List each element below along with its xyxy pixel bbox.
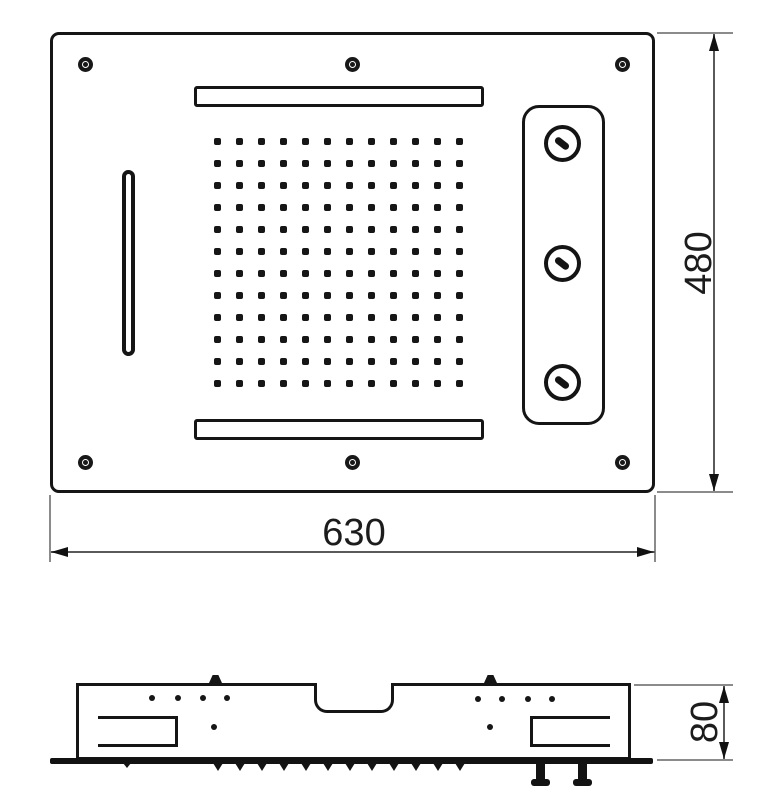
nozzle-dot bbox=[214, 160, 221, 167]
nozzle-dot bbox=[302, 138, 309, 145]
nozzle-dot bbox=[214, 314, 221, 321]
nozzle-dot bbox=[368, 138, 375, 145]
nozzle-dot bbox=[434, 358, 441, 365]
nozzle-dot bbox=[456, 160, 463, 167]
nozzle-dot bbox=[434, 270, 441, 277]
nozzle-dot bbox=[236, 226, 243, 233]
nozzle-dot bbox=[456, 204, 463, 211]
nozzle-dot bbox=[280, 138, 287, 145]
nozzle-dot bbox=[412, 138, 419, 145]
nozzle-dot bbox=[412, 314, 419, 321]
nozzle-dot bbox=[214, 248, 221, 255]
nozzle-dot bbox=[236, 292, 243, 299]
nozzle-dot bbox=[214, 380, 221, 387]
nozzle-dot bbox=[368, 204, 375, 211]
screw-center-dot bbox=[83, 62, 88, 67]
screw-center-dot bbox=[620, 460, 625, 465]
nozzle-dot bbox=[346, 160, 353, 167]
nozzle-dot bbox=[346, 292, 353, 299]
nozzle-dot bbox=[280, 160, 287, 167]
nozzle-tooth bbox=[345, 763, 355, 771]
nozzle-tooth bbox=[235, 763, 245, 771]
nozzle-dot bbox=[368, 270, 375, 277]
nozzle-dot bbox=[390, 358, 397, 365]
nozzle-dot bbox=[302, 182, 309, 189]
side-dot bbox=[487, 724, 493, 730]
nozzle-dot bbox=[324, 336, 331, 343]
nozzle-dot bbox=[214, 182, 221, 189]
nozzle-dot bbox=[302, 292, 309, 299]
nozzle-dot bbox=[346, 270, 353, 277]
nozzle-tooth bbox=[455, 763, 465, 771]
nozzle-dot bbox=[412, 270, 419, 277]
nozzle-dot bbox=[214, 270, 221, 277]
nozzle-dot bbox=[302, 336, 309, 343]
nozzle-tooth bbox=[301, 763, 311, 771]
nozzle-dot bbox=[412, 358, 419, 365]
nozzle-dot bbox=[434, 182, 441, 189]
nozzle-dot bbox=[236, 160, 243, 167]
nozzle-dot bbox=[302, 226, 309, 233]
nozzle-dot bbox=[456, 226, 463, 233]
nozzle-dot bbox=[280, 358, 287, 365]
nozzle-dot bbox=[214, 336, 221, 343]
nozzle-dot bbox=[434, 380, 441, 387]
height-arrow-up-icon bbox=[709, 34, 719, 51]
nozzle-dot bbox=[434, 160, 441, 167]
nozzle-dot bbox=[280, 226, 287, 233]
nozzle-dot bbox=[346, 226, 353, 233]
nozzle-dot bbox=[324, 358, 331, 365]
nozzle-dot bbox=[324, 182, 331, 189]
side-dot bbox=[499, 696, 505, 702]
nozzle-dot bbox=[368, 380, 375, 387]
nozzle-dot bbox=[434, 204, 441, 211]
nozzle-dot bbox=[412, 204, 419, 211]
nozzle-dot bbox=[280, 270, 287, 277]
jet-outlet bbox=[544, 364, 581, 401]
nozzle-dot bbox=[236, 336, 243, 343]
nozzle-dot bbox=[214, 204, 221, 211]
nozzle-dot bbox=[390, 336, 397, 343]
nozzle-dot bbox=[258, 358, 265, 365]
nozzle-dot bbox=[258, 270, 265, 277]
nozzle-dot bbox=[390, 380, 397, 387]
nozzle-dot bbox=[368, 182, 375, 189]
drawing-canvas: 480 630 80 bbox=[0, 0, 766, 800]
nozzle-dot bbox=[456, 292, 463, 299]
nozzle-dot bbox=[236, 248, 243, 255]
nozzle-dot bbox=[236, 204, 243, 211]
width-dim-label: 630 bbox=[302, 513, 406, 553]
nozzle-dot bbox=[368, 336, 375, 343]
nozzle-dot bbox=[412, 226, 419, 233]
nozzle-dot bbox=[434, 292, 441, 299]
jet-slot-icon bbox=[554, 374, 571, 389]
nozzle-dot bbox=[368, 248, 375, 255]
jet-outlet bbox=[544, 125, 581, 162]
nozzle-dot bbox=[412, 248, 419, 255]
nozzle-dot bbox=[324, 138, 331, 145]
nozzle-tooth bbox=[389, 763, 399, 771]
bolt-stem bbox=[578, 763, 587, 780]
nozzle-dot bbox=[412, 292, 419, 299]
nozzle-dot bbox=[302, 380, 309, 387]
nozzle-dot bbox=[236, 358, 243, 365]
nozzle-dot bbox=[412, 160, 419, 167]
nozzle-dot bbox=[390, 248, 397, 255]
nozzle-dot bbox=[434, 314, 441, 321]
nozzle-dot bbox=[236, 314, 243, 321]
nozzle-dot bbox=[258, 314, 265, 321]
spray-slot-top bbox=[194, 86, 484, 107]
nozzle-dot bbox=[280, 336, 287, 343]
nozzle-dot bbox=[390, 270, 397, 277]
screw-center-dot bbox=[83, 460, 88, 465]
nozzle-dot bbox=[346, 248, 353, 255]
screw-hole bbox=[615, 455, 630, 470]
nozzle-dot bbox=[434, 336, 441, 343]
nozzle-dot bbox=[302, 358, 309, 365]
nozzle-dot bbox=[434, 226, 441, 233]
nozzle-dot bbox=[280, 248, 287, 255]
nozzle-dot bbox=[258, 292, 265, 299]
waterfall-slot-left bbox=[122, 170, 135, 356]
nozzle-dot bbox=[390, 182, 397, 189]
nozzle-tooth bbox=[213, 763, 223, 771]
height-arrow-down-icon bbox=[709, 474, 719, 491]
nozzle-dot bbox=[258, 182, 265, 189]
nozzle-tooth bbox=[257, 763, 267, 771]
nozzle-tooth bbox=[411, 763, 421, 771]
nozzle-dot bbox=[368, 314, 375, 321]
nozzle-dot bbox=[280, 204, 287, 211]
nozzle-tooth bbox=[433, 763, 443, 771]
nozzle-dot bbox=[214, 226, 221, 233]
nozzle-dot bbox=[390, 314, 397, 321]
nozzle-dot bbox=[280, 292, 287, 299]
nozzle-dot bbox=[346, 336, 353, 343]
screw-center-dot bbox=[350, 460, 355, 465]
nozzle-dot bbox=[302, 314, 309, 321]
mounting-notch bbox=[314, 683, 394, 713]
side-dot bbox=[200, 695, 206, 701]
bolt-foot bbox=[531, 779, 550, 786]
nozzle-dot bbox=[456, 336, 463, 343]
bolt-foot bbox=[573, 779, 592, 786]
nozzle-dot bbox=[324, 380, 331, 387]
nozzle-tooth bbox=[323, 763, 333, 771]
nozzle-dot bbox=[346, 138, 353, 145]
nozzle-dot bbox=[346, 314, 353, 321]
nozzle-dot bbox=[390, 292, 397, 299]
screw-hole bbox=[615, 57, 630, 72]
nozzle-dot bbox=[368, 358, 375, 365]
nozzle-dot bbox=[412, 336, 419, 343]
water-channel-left bbox=[98, 716, 178, 747]
nozzle-dot bbox=[346, 380, 353, 387]
width-arrow-left-icon bbox=[51, 547, 68, 557]
depth-dim-label: 80 bbox=[685, 672, 725, 772]
nozzle-dot bbox=[214, 138, 221, 145]
nozzle-dot bbox=[390, 160, 397, 167]
side-dot bbox=[525, 696, 531, 702]
nozzle-dot bbox=[324, 248, 331, 255]
nozzle-dot bbox=[302, 270, 309, 277]
nozzle-dot bbox=[258, 226, 265, 233]
nozzle-dot bbox=[236, 182, 243, 189]
nozzle-dot bbox=[456, 270, 463, 277]
height-dim-label: 480 bbox=[679, 213, 719, 313]
nozzle-dot bbox=[258, 248, 265, 255]
nozzle-tooth bbox=[367, 763, 377, 771]
nozzle-dot bbox=[258, 380, 265, 387]
jet-slot-icon bbox=[554, 255, 571, 270]
height-ext-line-bottom bbox=[657, 491, 733, 493]
nozzle-dot bbox=[390, 226, 397, 233]
screw-hole bbox=[78, 57, 93, 72]
screw-hole bbox=[345, 57, 360, 72]
nozzle-dot bbox=[346, 358, 353, 365]
jet-outlet bbox=[544, 245, 581, 282]
nozzle-dot bbox=[368, 292, 375, 299]
jet-slot-icon bbox=[554, 135, 571, 150]
nozzle-dot bbox=[236, 138, 243, 145]
nozzle-dot bbox=[390, 204, 397, 211]
nozzle-dot bbox=[456, 138, 463, 145]
mounting-peg bbox=[484, 675, 497, 683]
screw-center-dot bbox=[620, 62, 625, 67]
side-dot bbox=[175, 695, 181, 701]
nozzle-dot bbox=[258, 336, 265, 343]
drain-nub bbox=[123, 763, 131, 768]
nozzle-dot bbox=[302, 160, 309, 167]
side-dot bbox=[149, 695, 155, 701]
nozzle-dot bbox=[346, 182, 353, 189]
side-dot bbox=[211, 724, 217, 730]
nozzle-dot bbox=[456, 314, 463, 321]
nozzle-dot bbox=[302, 204, 309, 211]
nozzle-dot bbox=[456, 248, 463, 255]
nozzle-dot bbox=[236, 380, 243, 387]
nozzle-dot bbox=[324, 270, 331, 277]
nozzle-dot bbox=[258, 138, 265, 145]
nozzle-dot bbox=[280, 314, 287, 321]
bolt-stem bbox=[536, 763, 545, 780]
nozzle-dot bbox=[368, 226, 375, 233]
nozzle-dot bbox=[324, 160, 331, 167]
nozzle-dot bbox=[324, 314, 331, 321]
nozzle-dot bbox=[434, 138, 441, 145]
nozzle-dot bbox=[456, 182, 463, 189]
nozzle-dot bbox=[412, 182, 419, 189]
width-arrow-right-icon bbox=[637, 547, 654, 557]
nozzle-dot bbox=[236, 270, 243, 277]
spray-slot-bottom bbox=[194, 419, 484, 440]
nozzle-dot bbox=[280, 380, 287, 387]
nozzle-dot bbox=[456, 358, 463, 365]
nozzle-dot bbox=[412, 380, 419, 387]
nozzle-dot bbox=[302, 248, 309, 255]
side-dot bbox=[475, 696, 481, 702]
nozzle-dot bbox=[368, 160, 375, 167]
screw-hole bbox=[78, 455, 93, 470]
nozzle-dot bbox=[214, 358, 221, 365]
nozzle-dot bbox=[346, 204, 353, 211]
nozzle-dot bbox=[258, 160, 265, 167]
nozzle-dot bbox=[324, 204, 331, 211]
water-channel-right bbox=[530, 716, 610, 747]
nozzle-dot bbox=[324, 292, 331, 299]
screw-hole bbox=[345, 455, 360, 470]
mounting-peg bbox=[209, 675, 222, 683]
side-dot bbox=[224, 695, 230, 701]
nozzle-dot bbox=[434, 248, 441, 255]
nozzle-dot bbox=[456, 380, 463, 387]
screw-center-dot bbox=[350, 62, 355, 67]
nozzle-dot bbox=[214, 292, 221, 299]
nozzle-dot bbox=[258, 204, 265, 211]
side-dot bbox=[549, 696, 555, 702]
height-ext-line-top bbox=[657, 32, 733, 34]
nozzle-dot bbox=[390, 138, 397, 145]
nozzle-tooth bbox=[279, 763, 289, 771]
nozzle-dot bbox=[324, 226, 331, 233]
nozzle-dot bbox=[280, 182, 287, 189]
